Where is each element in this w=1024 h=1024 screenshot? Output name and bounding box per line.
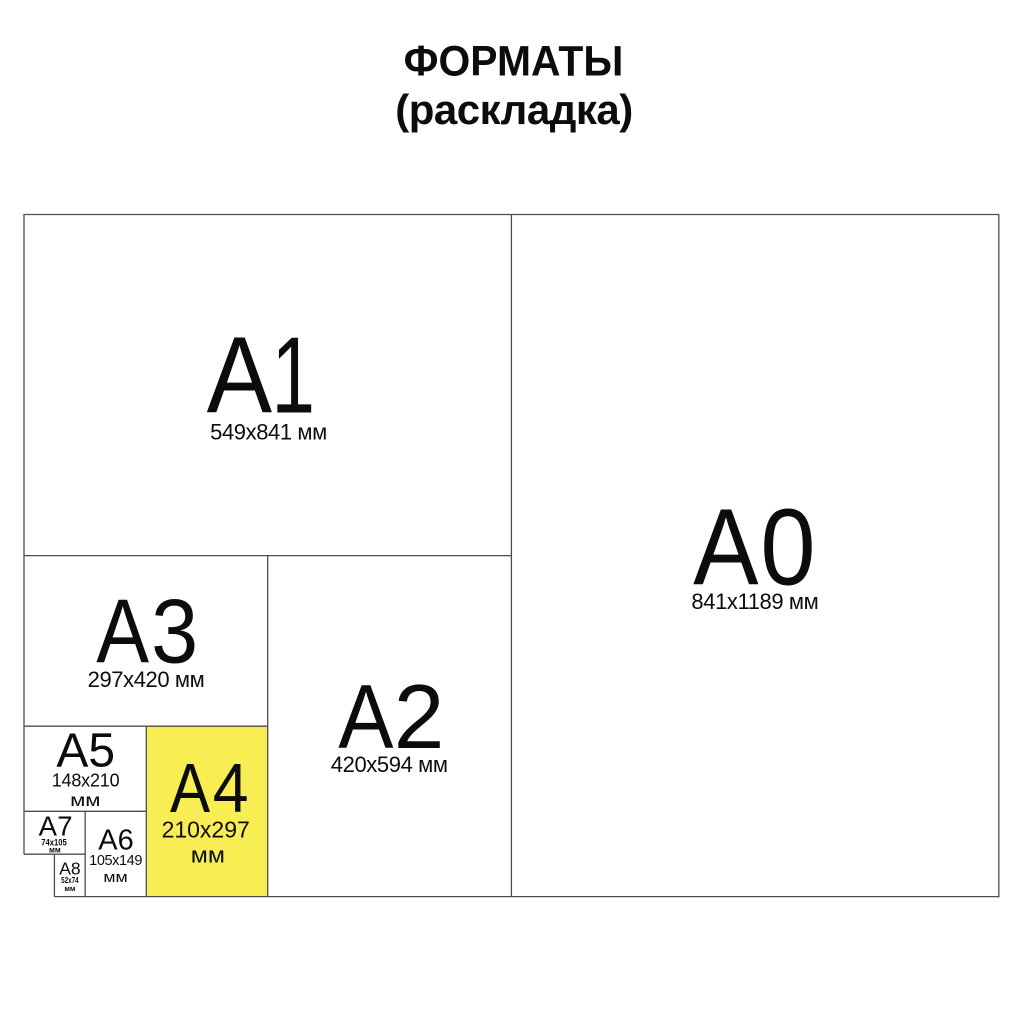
svg-text:мм: мм — [64, 884, 76, 893]
svg-text:A: A — [170, 749, 211, 827]
svg-text:105x149: 105x149 — [89, 853, 142, 869]
svg-text:A6: A6 — [98, 825, 133, 857]
svg-text:549x841 мм: 549x841 мм — [210, 419, 327, 444]
svg-text:148x210: 148x210 — [52, 771, 120, 791]
svg-text:ФОРМАТЫ: ФОРМАТЫ — [404, 36, 624, 84]
svg-text:A: A — [207, 314, 272, 436]
svg-text:мм: мм — [103, 869, 127, 885]
svg-text:297x420 мм: 297x420 мм — [88, 667, 205, 692]
svg-text:мм: мм — [49, 845, 61, 854]
svg-text:1: 1 — [271, 315, 315, 437]
svg-text:841x1189 мм: 841x1189 мм — [691, 589, 818, 614]
svg-text:мм: мм — [191, 843, 225, 867]
svg-text:(раскладка): (раскладка) — [395, 86, 632, 133]
svg-text:210x297: 210x297 — [162, 817, 250, 843]
svg-text:420x594 мм: 420x594 мм — [331, 752, 448, 777]
svg-text:мм: мм — [70, 791, 100, 811]
